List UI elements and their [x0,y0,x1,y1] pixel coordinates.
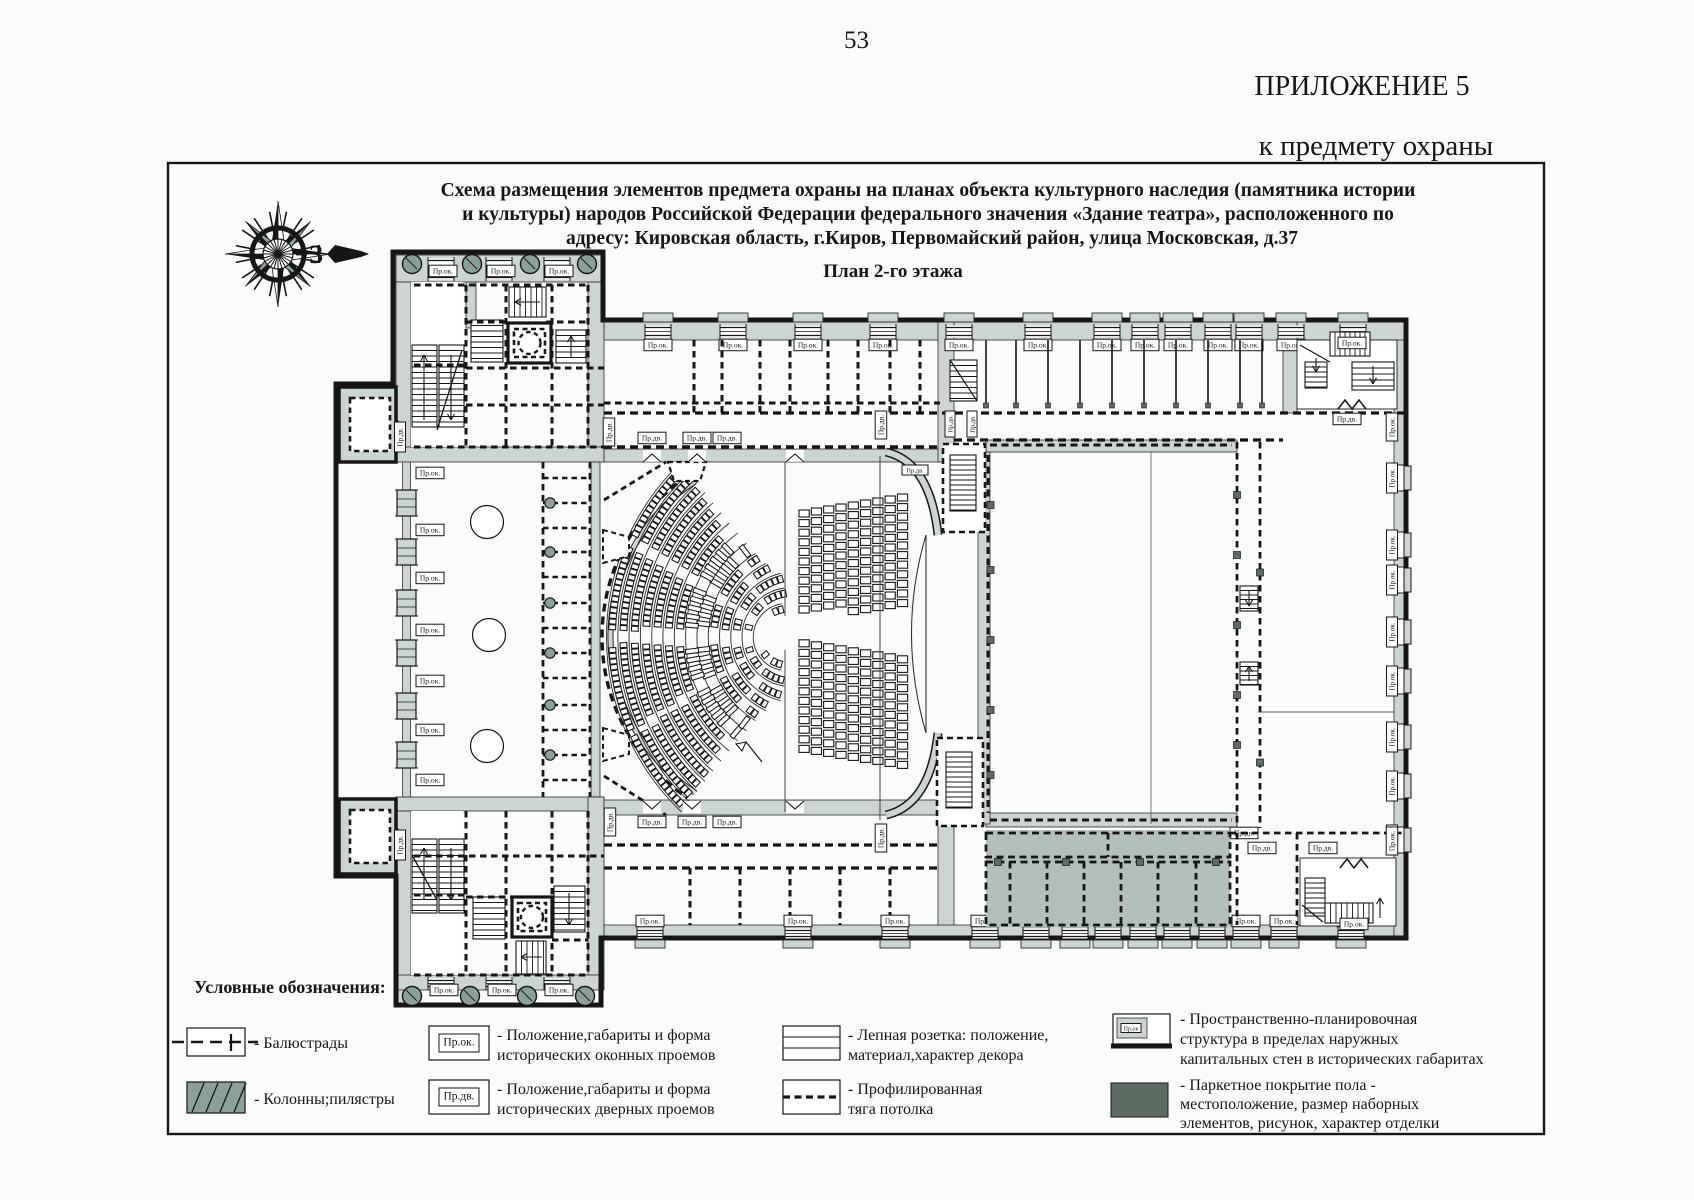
svg-text:местоположение, размер наборны: местоположение, размер наборных [1180,1096,1419,1113]
svg-text:Пр.ок: Пр.ок [1124,1027,1139,1033]
svg-text:Пр.ок.: Пр.ок. [420,677,440,686]
svg-text:Пр.дв.: Пр.дв. [877,415,886,435]
svg-text:Пр.ок.: Пр.ок. [1344,920,1364,929]
svg-text:исторических оконных проемов: исторических оконных проемов [497,1047,716,1064]
svg-text:Пр.ок.: Пр.ок. [420,469,440,478]
svg-text:тяга потолка: тяга потолка [848,1101,933,1118]
svg-text:Пр.ок.: Пр.ок. [1097,341,1117,350]
svg-text:Пр.ок.: Пр.ок. [420,726,440,735]
svg-text:Пр.ок.: Пр.ок. [1389,622,1397,641]
svg-text:Пр.ок.: Пр.ок. [549,267,569,276]
svg-text:Пр.дв.: Пр.дв. [877,828,886,848]
svg-text:Пр.ок.: Пр.ок. [798,341,818,350]
svg-text:Пр.ок.: Пр.ок. [1389,671,1397,690]
svg-text:Пр.дв.: Пр.дв. [1252,844,1272,853]
svg-text:Пр.дв.: Пр.дв. [687,434,707,443]
svg-text:Пр.ок.: Пр.ок. [491,267,511,276]
svg-text:Пр.ок.: Пр.ок. [1388,831,1397,851]
svg-text:Пр.дв.: Пр.дв. [397,835,405,854]
svg-text:Пр.дв.: Пр.дв. [642,818,662,827]
svg-text:- Лепная розетка: положение,: - Лепная розетка: положение, [848,1027,1048,1044]
svg-text:Пр.ок.: Пр.ок. [1028,341,1048,350]
svg-text:Пр.ок.: Пр.ок. [1389,727,1397,746]
svg-text:- Положение,габариты и форма: - Положение,габариты и форма [497,1027,710,1044]
svg-text:Пр.ок.: Пр.ок. [1389,468,1397,487]
svg-text:Пр.ок.: Пр.ок. [420,776,440,785]
svg-text:- Профилированная: - Профилированная [848,1081,983,1098]
svg-text:исторических дверных проемов: исторических дверных проемов [497,1101,715,1118]
svg-text:к предмету охраны: к предмету охраны [1259,130,1494,162]
svg-text:Условные обозначения:: Условные обозначения: [194,977,386,997]
svg-text:Пр.дв.: Пр.дв. [1337,415,1357,424]
svg-text:- Пространственно-планировочна: - Пространственно-планировочная [1180,1011,1418,1028]
svg-text:капитальных стен в исторически: капитальных стен в исторических габарита… [1180,1051,1484,1068]
svg-text:Пр.ок.: Пр.ок. [549,986,569,995]
svg-text:Пр.дв.: Пр.дв. [1313,844,1333,853]
svg-text:Пр.ок.: Пр.ок. [1168,341,1188,350]
svg-text:Пр.ок.: Пр.ок. [433,267,453,276]
svg-text:Пр.ок.: Пр.ок. [492,986,512,995]
svg-text:Пр.ок.: Пр.ок. [723,341,743,350]
svg-text:Пр.дв.: Пр.дв. [606,812,615,832]
svg-text:Пр.дв.: Пр.дв. [397,427,405,446]
svg-text:Пр.ок.: Пр.ок. [1236,917,1256,926]
svg-text:Пр.дв.: Пр.дв. [605,422,614,442]
svg-text:- Балюстрады: - Балюстрады [254,1035,348,1052]
svg-text:Пр.ок.: Пр.ок. [885,917,905,926]
svg-text:З: З [309,240,323,269]
svg-text:Пр.дв.: Пр.дв. [717,434,737,443]
svg-text:Пр.ок.: Пр.ок. [1208,341,1228,350]
svg-text:- Положение,габариты и форма: - Положение,габариты и форма [497,1081,710,1098]
svg-text:адресу: Кировская область, г.К: адресу: Кировская область, г.Киров, Перв… [566,228,1298,249]
svg-text:Пр.дв.: Пр.дв. [443,1091,474,1103]
svg-text:Пр.ок.: Пр.ок. [949,341,969,350]
svg-text:Пр.ок.: Пр.ок. [1342,339,1362,348]
svg-text:Пр.дв.: Пр.дв. [948,415,955,433]
svg-text:Пр.ок.: Пр.ок. [1274,917,1294,926]
svg-text:53: 53 [844,27,869,54]
svg-text:- Колонны;пилястры: - Колонны;пилястры [254,1091,395,1108]
svg-text:Схема размещения элементов пре: Схема размещения элементов предмета охра… [441,180,1416,201]
svg-text:Пр.ок.: Пр.ок. [640,917,660,926]
svg-text:Пр.ок.: Пр.ок. [443,1037,474,1049]
svg-text:Пр.ок.: Пр.ок. [788,917,808,926]
svg-text:Пр.ок.: Пр.ок. [1388,417,1397,437]
svg-text:Пр.ок.: Пр.ок. [1239,341,1259,350]
svg-text:Пр.дв.: Пр.дв. [717,818,737,827]
svg-text:Пр.ок.: Пр.ок. [420,626,440,635]
svg-text:элементов, рисунок, характер о: элементов, рисунок, характер отделки [1180,1115,1440,1132]
svg-text:Пр.дв.: Пр.дв. [970,415,977,433]
svg-text:Пр.ок.: Пр.ок. [648,341,668,350]
svg-text:и культуры) народов Российской: и культуры) народов Российской Федерации… [462,204,1394,225]
svg-text:План 2-го этажа: План 2-го этажа [823,261,963,282]
svg-text:Пр.ок.: Пр.ок. [1389,535,1397,554]
svg-text:Пр.дв.: Пр.дв. [682,818,702,827]
svg-text:Пр.ок.: Пр.ок. [420,526,440,535]
svg-text:Пр.ок.: Пр.ок. [1389,570,1397,589]
svg-text:материал,характер декора: материал,характер декора [848,1047,1024,1064]
svg-text:Пр.дв.: Пр.дв. [642,434,662,443]
svg-text:Пр.дв.: Пр.дв. [906,468,924,475]
svg-text:ПРИЛОЖЕНИЕ 5: ПРИЛОЖЕНИЕ 5 [1254,71,1469,102]
svg-text:Пр.ок.: Пр.ок. [1389,776,1397,795]
svg-text:структура в пределах наружных: структура в пределах наружных [1180,1031,1398,1048]
svg-text:Пр.ок.: Пр.ок. [1135,341,1155,350]
svg-text:Пр.ок.: Пр.ок. [434,986,454,995]
svg-text:- Паркетное покрытие пола -: - Паркетное покрытие пола - [1180,1077,1376,1094]
svg-text:Пр.ок.: Пр.ок. [420,574,440,583]
